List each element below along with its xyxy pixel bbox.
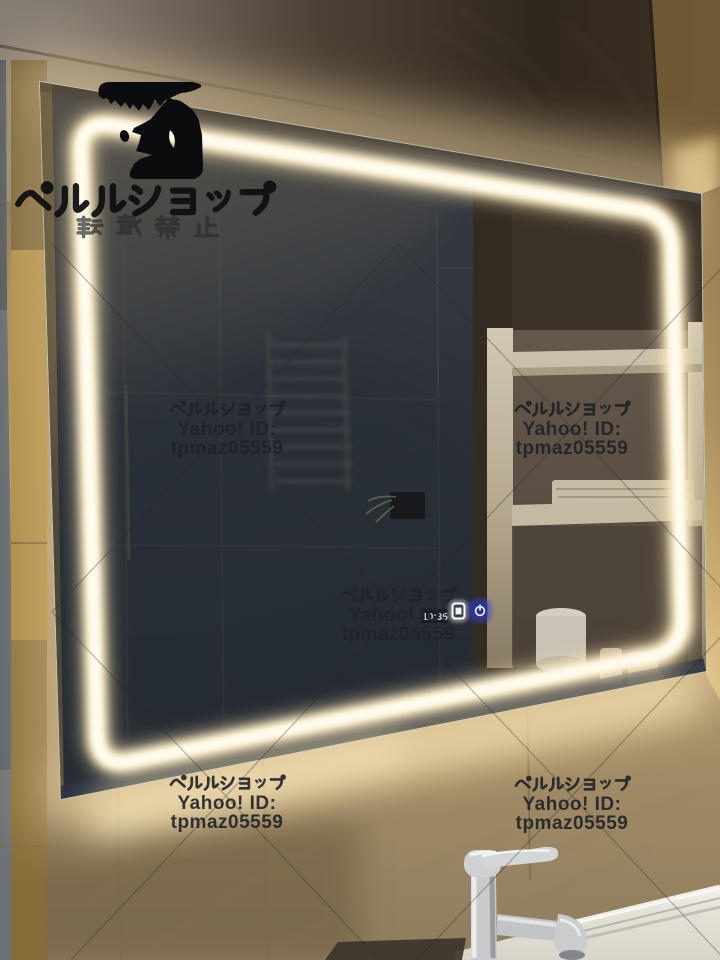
svg-text:tpmaz05559: tpmaz05559: [171, 812, 284, 833]
svg-text:Yahoo! ID:: Yahoo! ID:: [178, 419, 277, 440]
svg-text:Yahoo! ID:: Yahoo! ID:: [349, 605, 448, 626]
svg-text:tpmaz05559: tpmaz05559: [342, 624, 455, 645]
svg-text:Yahoo! ID:: Yahoo! ID:: [523, 794, 622, 815]
svg-text:Yahoo! ID:: Yahoo! ID:: [178, 793, 277, 814]
svg-text:Yahoo! ID:: Yahoo! ID:: [523, 419, 622, 440]
svg-text:tpmaz05559: tpmaz05559: [516, 438, 629, 459]
svg-text:tpmaz05559: tpmaz05559: [516, 813, 629, 834]
svg-text:tpmaz05559: tpmaz05559: [171, 438, 284, 459]
